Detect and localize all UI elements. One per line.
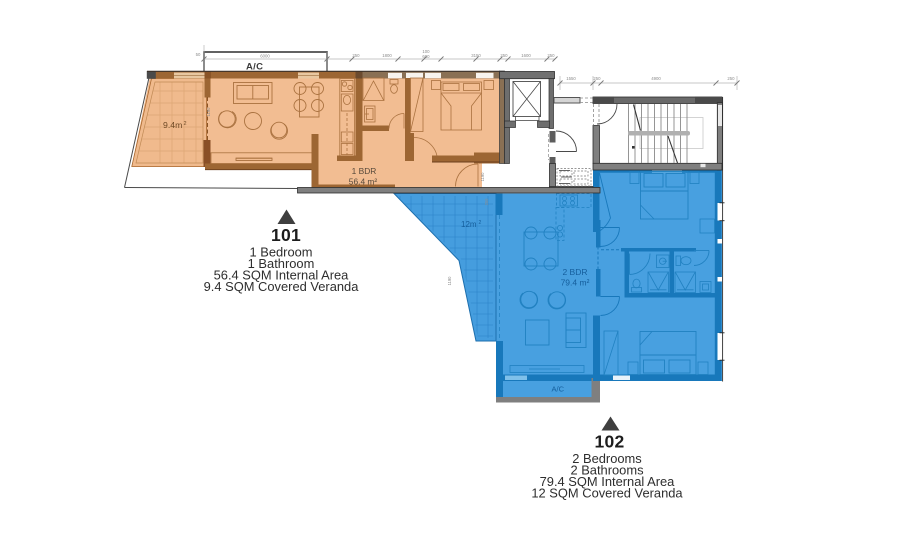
svg-text:250: 250 [484, 198, 489, 206]
svg-text:600: 600 [422, 54, 430, 59]
svg-text:79.4 m²: 79.4 m² [561, 278, 590, 288]
svg-text:102: 102 [594, 432, 624, 452]
svg-text:6000: 6000 [260, 54, 270, 59]
svg-text:250: 250 [593, 76, 601, 81]
svg-text:250: 250 [500, 53, 508, 58]
svg-text:1800: 1800 [382, 53, 392, 58]
svg-text:50: 50 [196, 52, 201, 57]
svg-text:250: 250 [727, 76, 735, 81]
svg-text:1190: 1190 [480, 172, 485, 182]
svg-text:12m: 12m [461, 220, 477, 229]
svg-text:250: 250 [547, 53, 555, 58]
svg-text:2: 2 [184, 121, 187, 127]
svg-text:250: 250 [352, 53, 360, 58]
svg-text:101: 101 [271, 225, 301, 245]
svg-text:9.4 SQM Covered Veranda: 9.4 SQM Covered Veranda [204, 279, 360, 294]
svg-text:2: 2 [479, 220, 482, 226]
svg-text:1550: 1550 [566, 76, 576, 81]
svg-text:3150: 3150 [471, 53, 481, 58]
svg-text:A/C: A/C [552, 385, 565, 394]
svg-text:1 BDR: 1 BDR [352, 166, 377, 176]
svg-text:9.4m: 9.4m [163, 120, 182, 130]
svg-text:2 BDR: 2 BDR [562, 267, 587, 277]
svg-text:1600: 1600 [521, 53, 531, 58]
svg-text:1190: 1190 [206, 107, 211, 117]
svg-text:56.4 m²: 56.4 m² [349, 177, 378, 187]
svg-text:1190: 1190 [447, 276, 452, 286]
svg-text:4900: 4900 [651, 76, 661, 81]
svg-text:12 SQM Covered Veranda: 12 SQM Covered Veranda [531, 486, 683, 501]
